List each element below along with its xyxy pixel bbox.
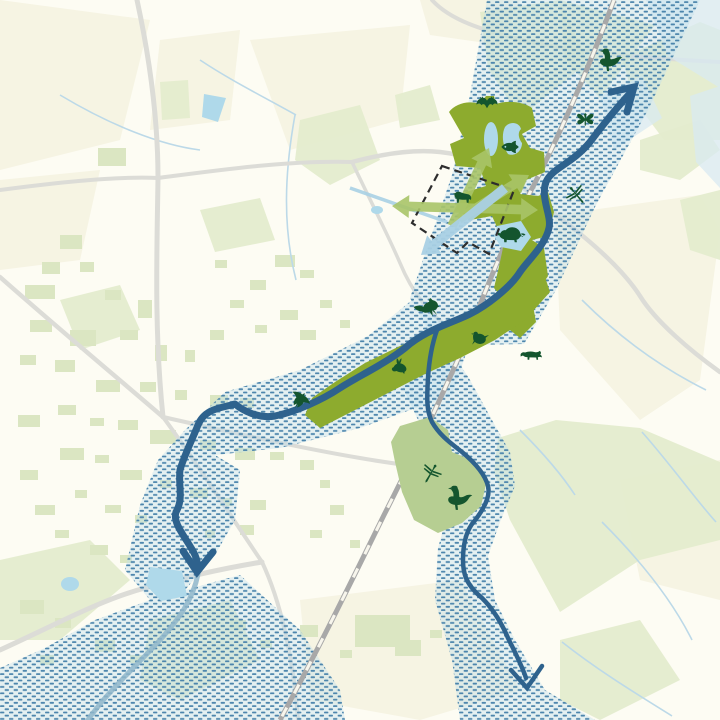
building-block <box>300 460 314 470</box>
building-block <box>175 390 187 400</box>
pond <box>371 206 383 214</box>
building-block <box>430 630 442 638</box>
building-block <box>250 500 266 510</box>
building-block <box>35 505 55 515</box>
building-block <box>120 470 142 480</box>
building-block <box>90 418 104 426</box>
building-block <box>80 262 94 272</box>
building-block <box>250 280 266 290</box>
building-block <box>355 615 410 647</box>
building-block <box>300 330 316 340</box>
building-block <box>96 380 120 392</box>
building-block <box>280 310 298 320</box>
building-block <box>320 480 330 488</box>
building-block <box>20 470 38 480</box>
building-block <box>230 300 244 308</box>
building-block <box>105 505 121 513</box>
building-block <box>330 505 344 515</box>
building-block <box>75 490 87 498</box>
building-block <box>18 415 40 427</box>
building-block <box>185 350 195 362</box>
building-block <box>138 300 152 318</box>
building-block <box>60 235 82 249</box>
building-block <box>340 320 350 328</box>
building-block <box>350 540 360 548</box>
building-block <box>55 360 75 372</box>
building-block <box>210 330 224 340</box>
building-block <box>98 148 126 166</box>
building-block <box>140 382 156 392</box>
building-block <box>42 262 60 274</box>
building-block <box>120 330 138 340</box>
building-block <box>20 600 44 614</box>
building-block <box>310 530 322 538</box>
building-block <box>215 260 227 268</box>
building-block <box>320 300 332 308</box>
building-block <box>95 455 109 463</box>
green-field <box>160 80 190 120</box>
building-block <box>90 545 108 555</box>
plan-map-view <box>0 0 720 720</box>
building-block <box>270 452 284 460</box>
building-block <box>105 290 121 300</box>
building-block <box>58 405 76 415</box>
building-block <box>20 355 36 365</box>
plan-map-canvas <box>0 0 720 720</box>
building-block <box>55 530 69 538</box>
building-block <box>60 448 84 460</box>
building-block <box>340 650 352 658</box>
building-block <box>25 285 55 299</box>
building-block <box>300 270 314 278</box>
building-block <box>255 325 267 333</box>
pond <box>61 577 79 591</box>
building-block <box>118 420 138 430</box>
